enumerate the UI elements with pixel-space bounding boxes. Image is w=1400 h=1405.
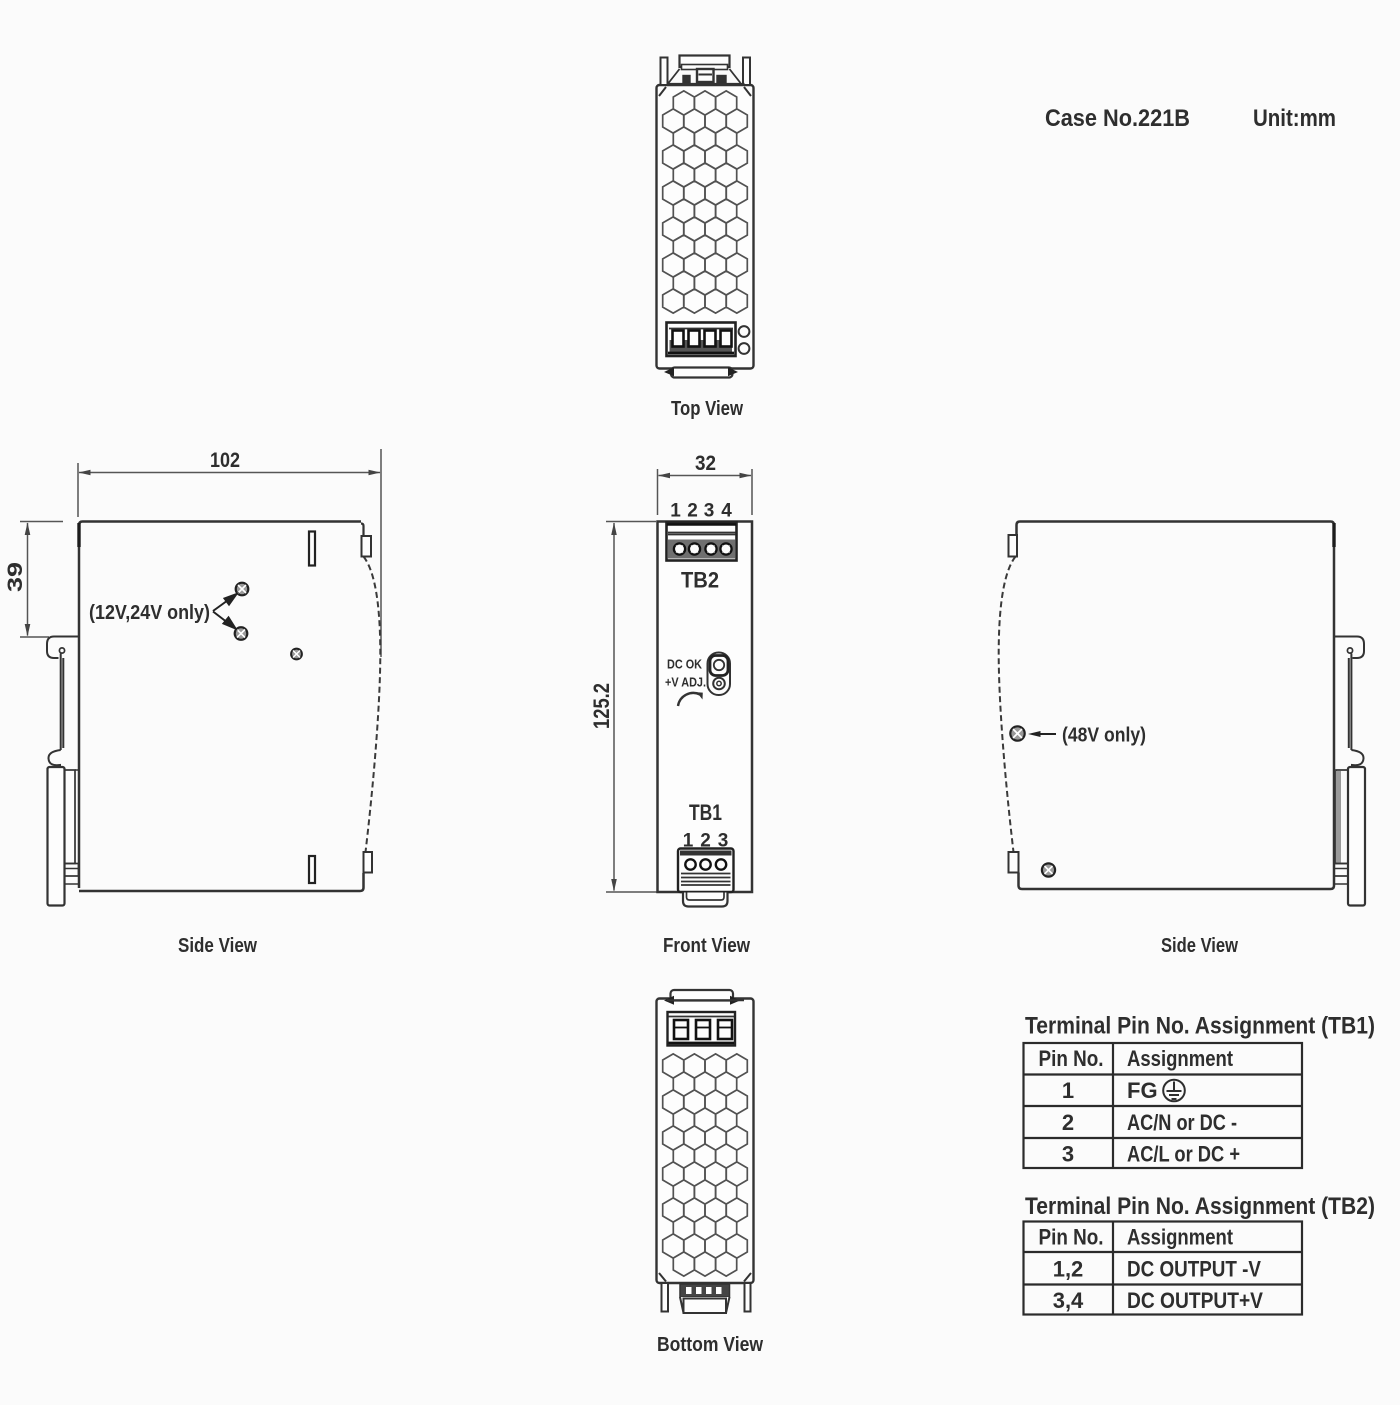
svg-text:DC OUTPUT -V: DC OUTPUT -V xyxy=(1127,1257,1261,1282)
svg-text:DC OUTPUT+V: DC OUTPUT+V xyxy=(1127,1288,1263,1313)
svg-text:4: 4 xyxy=(721,501,732,522)
svg-text:AC/L or DC +: AC/L or DC + xyxy=(1127,1142,1240,1167)
svg-text:1: 1 xyxy=(670,501,681,522)
svg-text:FG: FG xyxy=(1127,1078,1158,1103)
svg-text:(12V,24V only): (12V,24V only) xyxy=(89,602,210,624)
svg-text:TB2: TB2 xyxy=(681,568,719,593)
svg-text:Pin No.: Pin No. xyxy=(1039,1046,1104,1071)
svg-text:3: 3 xyxy=(1062,1142,1074,1167)
svg-text:Terminal Pin No. Assignment (: Terminal Pin No. Assignment (TB1) xyxy=(1025,1013,1375,1040)
svg-text:125.2: 125.2 xyxy=(589,683,614,729)
svg-text:3: 3 xyxy=(704,501,715,522)
svg-text:Assignment: Assignment xyxy=(1127,1046,1234,1071)
svg-text:Front View: Front View xyxy=(663,935,750,957)
svg-text:Unit:mm: Unit:mm xyxy=(1253,105,1336,132)
svg-text:Terminal Pin No. Assignment (: Terminal Pin No. Assignment (TB2) xyxy=(1025,1193,1375,1220)
svg-text:2: 2 xyxy=(1062,1110,1074,1135)
svg-text:Side View: Side View xyxy=(178,935,257,957)
svg-text:AC/N or DC -: AC/N or DC - xyxy=(1127,1110,1237,1135)
svg-text:Side View: Side View xyxy=(1161,935,1238,957)
svg-text:Top View: Top View xyxy=(671,398,743,420)
svg-text:1,2: 1,2 xyxy=(1053,1257,1084,1282)
svg-text:32: 32 xyxy=(695,452,716,475)
svg-text:39: 39 xyxy=(4,562,27,592)
svg-text:Pin No.: Pin No. xyxy=(1039,1225,1104,1250)
svg-text:Case No.221B: Case No.221B xyxy=(1045,105,1190,132)
svg-text:3,4: 3,4 xyxy=(1053,1288,1084,1313)
svg-text:DC OK: DC OK xyxy=(667,658,702,672)
svg-text:Assignment: Assignment xyxy=(1127,1225,1234,1250)
svg-text:Bottom View: Bottom View xyxy=(657,1334,763,1356)
svg-text:1: 1 xyxy=(1062,1078,1074,1103)
svg-text:(48V only): (48V only) xyxy=(1062,725,1146,747)
svg-text:102: 102 xyxy=(210,449,240,472)
svg-text:2: 2 xyxy=(687,501,698,522)
svg-text:+V ADJ.: +V ADJ. xyxy=(665,676,706,690)
svg-text:TB1: TB1 xyxy=(689,800,722,825)
